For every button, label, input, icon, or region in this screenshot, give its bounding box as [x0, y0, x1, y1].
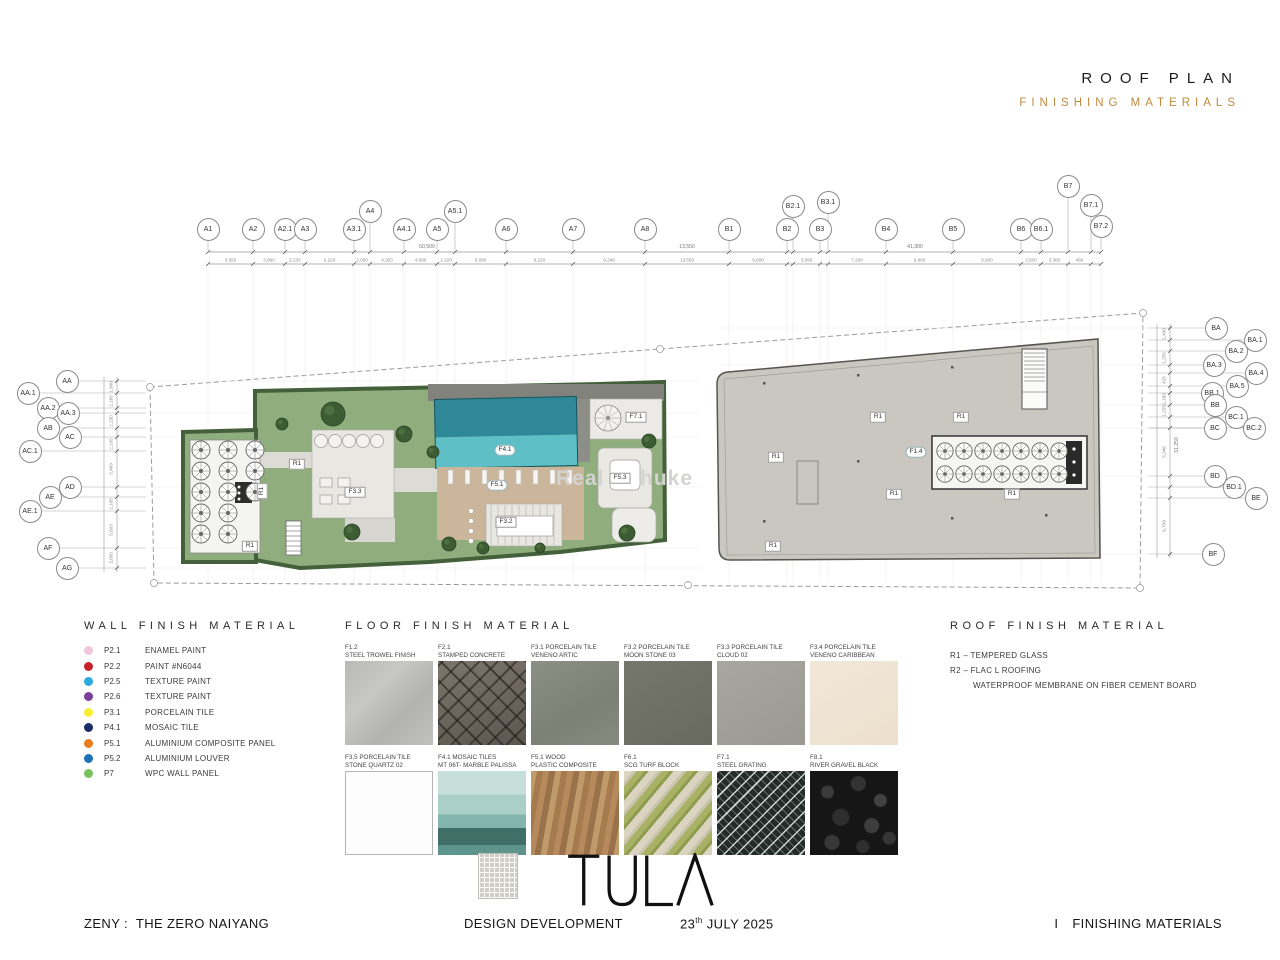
swimming-pool — [434, 396, 577, 468]
plan-tag-r1: R1 — [870, 412, 886, 423]
grid-bubble: B4 — [875, 218, 898, 241]
dimension-text: 6,800 — [752, 258, 764, 263]
floor-material-cell: F3.1 PORCELAIN TILEVENENO ARTIC — [531, 644, 619, 745]
grid-bubble: AF — [37, 537, 60, 560]
dimension-text: 4,090 — [415, 258, 427, 263]
grid-bubble: A5 — [426, 218, 449, 241]
material-code: P5.1 — [104, 739, 145, 748]
material-code: F3.3 PORCELAIN TILE — [717, 644, 805, 652]
stair-shaft — [1022, 349, 1047, 409]
wall-legend-row: P4.1MOSAIC TILE — [84, 720, 354, 735]
grid-bubble: A3.1 — [343, 218, 366, 241]
material-name: MOON STONE 03 — [624, 652, 712, 660]
dimension-text: 1,255 — [1161, 352, 1166, 364]
material-swatch — [531, 771, 619, 855]
dimension-text: 4,303 — [381, 258, 393, 263]
material-code: F2.1 — [438, 644, 526, 652]
plan-tag-f71: F7.1 — [625, 412, 646, 423]
dimension-text: 3,380 — [1049, 258, 1061, 263]
grid-bubble: A4 — [359, 200, 382, 223]
roof-legend-header: ROOF FINISH MATERIAL — [950, 620, 1250, 632]
material-name: STEEL GRATING — [717, 762, 805, 770]
dimension-text: 3,860 — [263, 258, 275, 263]
material-swatch — [717, 771, 805, 855]
floor-finish-legend: FLOOR FINISH MATERIAL F1.2STEEL TROWEL F… — [345, 620, 905, 855]
plan-tag-r1: R1 — [289, 459, 305, 470]
material-name: SCG TURF BLOCK — [624, 762, 712, 770]
grid-bubble: AB — [37, 417, 60, 440]
grid-bubble: BC — [1204, 417, 1227, 440]
grid-bubble: B2.1 — [782, 195, 805, 218]
grid-bubble: AC — [59, 426, 82, 449]
material-code: P2.1 — [104, 646, 145, 655]
wall-legend-row: P5.2ALUMINIUM LOUVER — [84, 751, 354, 766]
material-swatch — [438, 661, 526, 745]
material-code: P4.1 — [104, 723, 145, 732]
grid-bubble: A2 — [242, 218, 265, 241]
dimension-text: 13,550 — [679, 244, 695, 250]
grid-bubble: A5.1 — [444, 200, 467, 223]
dimension-text: 13,550 — [680, 258, 694, 263]
grid-bubble: B2 — [776, 218, 799, 241]
material-color-dot — [84, 754, 93, 763]
grid-bubble: AA — [56, 370, 79, 393]
plan-tag-f33: F3.3 — [344, 487, 365, 498]
dimension-text: 2,050 — [356, 258, 368, 263]
plan-tag-r1: R1 — [765, 541, 781, 552]
dimension-text: 5,346 — [1161, 446, 1166, 458]
wall-legend-row: P5.1ALUMINIUM COMPOSITE PANEL — [84, 735, 354, 750]
material-color-dot — [84, 662, 93, 671]
tula-logo — [565, 853, 717, 907]
material-name: MT 06T- MARBLE PALISSA — [438, 762, 526, 770]
material-code: F6.1 — [624, 754, 712, 762]
plan-tag-f53: F5.3 — [609, 473, 630, 484]
material-code: F8.1 — [810, 754, 898, 762]
plan-tag-r1: R1 — [242, 541, 258, 552]
dimension-text: 5,469 — [108, 463, 113, 475]
dimension-text: 460 — [1076, 258, 1084, 263]
material-code: F3.2 PORCELAIN TILE — [624, 644, 712, 652]
dimension-text: 2,230 — [108, 415, 113, 427]
material-code: F3.4 PORCELAIN TILE — [810, 644, 898, 652]
dimension-text: 6,220 — [324, 258, 336, 263]
grid-bubble: B3.1 — [817, 191, 840, 214]
grid-bubble: B3 — [809, 218, 832, 241]
grid-bubble: BD.1 — [1223, 476, 1246, 499]
roof-material-line: R1 – TEMPERED GLASS — [950, 648, 1250, 663]
material-color-dot — [84, 769, 93, 778]
grid-bubble: B7.2 — [1090, 215, 1113, 238]
grid-bubble: AE — [39, 486, 62, 509]
floor-material-cell: F4.1 MOSAIC TILESMT 06T- MARBLE PALISSA — [438, 754, 526, 855]
dimension-text: 5,603 — [108, 524, 113, 536]
dimension-text: 1,255 — [1161, 405, 1166, 417]
floor-material-cell: F3.3 PORCELAIN TILECLOUD 02 — [717, 644, 805, 745]
grid-bubble: AC.1 — [19, 440, 42, 463]
material-label: ALUMINIUM COMPOSITE PANEL — [145, 739, 275, 748]
plan-tag-r1: R1 — [1004, 489, 1020, 500]
material-swatch — [531, 661, 619, 745]
grid-bubble: BB — [1204, 394, 1227, 417]
grid-bubble: B5 — [942, 218, 965, 241]
material-label: ALUMINIUM LOUVER — [145, 754, 230, 763]
grid-bubble: AA.1 — [17, 382, 40, 405]
dimension-text: 31,250 — [1174, 437, 1180, 453]
date-label: 23th JULY 2025 — [680, 916, 773, 931]
material-label: MOSAIC TILE — [145, 723, 199, 732]
dimension-text: 6,090 — [475, 258, 487, 263]
dimension-text: 2,105 — [108, 438, 113, 450]
plan-tag-f32: F3.2 — [495, 517, 516, 528]
wall-legend-row: P2.1ENAMEL PAINT — [84, 643, 354, 658]
dimension-text: 2,230 — [289, 258, 301, 263]
grid-bubble: BC.2 — [1243, 417, 1266, 440]
grid-bubble: A6 — [495, 218, 518, 241]
phase-label: DESIGN DEVELOPMENT — [464, 916, 623, 931]
wall-legend-row: P2.5TEXTURE PAINT — [84, 674, 354, 689]
watermark-fragment: huke — [640, 467, 693, 491]
floor-material-cell: F5.1 WOODPLASTIC COMPOSITE — [531, 754, 619, 855]
dimension-text: 8,220 — [534, 258, 546, 263]
material-code: P2.5 — [104, 677, 145, 686]
wall-legend-header: WALL FINISH MATERIAL — [84, 620, 354, 632]
material-swatch — [810, 661, 898, 745]
dimension-text: 9,600 — [981, 258, 993, 263]
plan-tag-f41: F4.1 — [494, 445, 515, 456]
wall-legend-row: P3.1PORCELAIN TILE — [84, 705, 354, 720]
material-name: VENENO ARTIC — [531, 652, 619, 660]
plan-tag-f51: F5.1 — [486, 480, 507, 491]
dimension-text: 3,090 — [801, 258, 813, 263]
roof-finish-legend: ROOF FINISH MATERIAL R1 – TEMPERED GLASS… — [950, 620, 1250, 693]
wall-legend-row: P2.6TEXTURE PAINT — [84, 689, 354, 704]
roof-material-line: R2 – FLAC L ROOFING — [950, 663, 1250, 678]
material-label: PAINT #N6044 — [145, 662, 202, 671]
material-swatch — [810, 771, 898, 855]
material-swatch — [624, 771, 712, 855]
material-code: F3.5 PORCELAIN TILE — [345, 754, 433, 762]
grid-bubble: B7 — [1057, 175, 1080, 198]
material-code: P7 — [104, 769, 145, 778]
dimension-text: 1,900 — [108, 381, 113, 393]
dimension-text: 7,200 — [851, 258, 863, 263]
material-label: TEXTURE PAINT — [145, 677, 211, 686]
material-color-dot — [84, 739, 93, 748]
material-name: RIVER GRAVEL BLACK — [810, 762, 898, 770]
material-swatch — [345, 771, 433, 855]
grid-bubble: B6.1 — [1030, 218, 1053, 241]
material-label: WPC WALL PANEL — [145, 769, 219, 778]
grid-bubble: AD — [59, 476, 82, 499]
material-code: P2.2 — [104, 662, 145, 671]
grid-bubble: BA.3 — [1203, 354, 1226, 377]
dimension-text: 41,300 — [907, 244, 923, 250]
dimension-text: 50,500 — [419, 244, 435, 250]
plan-tag-r1: R1 — [886, 489, 902, 500]
dimension-text: 1,220 — [440, 258, 452, 263]
grid-bubble: AA.3 — [57, 402, 80, 425]
grid-bubble: A8 — [634, 218, 657, 241]
material-color-dot — [84, 677, 93, 686]
plan-tag-r1: R1 — [257, 483, 268, 499]
material-name: PLASTIC COMPOSITE — [531, 762, 619, 770]
dimension-text: 1,430 — [1161, 328, 1166, 340]
floor-material-cell: F8.1RIVER GRAVEL BLACK — [810, 754, 898, 855]
material-code: F5.1 WOOD — [531, 754, 619, 762]
material-name: STAMPED CONCRETE — [438, 652, 526, 660]
roof-plan-drawing — [0, 0, 1280, 615]
plan-tag-f14: F1.4 — [905, 447, 926, 458]
floor-material-cell: F2.1STAMPED CONCRETE — [438, 644, 526, 745]
dimension-text: 9,346 — [603, 258, 615, 263]
grid-bubble: B1 — [718, 218, 741, 241]
grid-bubble: AE.1 — [19, 500, 42, 523]
material-label: ENAMEL PAINT — [145, 646, 206, 655]
plan-tag-r1: R1 — [768, 452, 784, 463]
material-code: F3.1 PORCELAIN TILE — [531, 644, 619, 652]
service-stair — [286, 521, 301, 555]
sheet-label: IFINISHING MATERIALS — [1054, 916, 1222, 931]
floor-material-cell: F3.5 PORCELAIN TILESTONE QUARTZ 02 — [345, 754, 433, 855]
grid-bubble: A4.1 — [393, 218, 416, 241]
material-label: TEXTURE PAINT — [145, 692, 211, 701]
material-name: VENENO CARIBBEAN — [810, 652, 898, 660]
dimension-text: 425 — [1161, 376, 1166, 384]
dimension-text: 3,550 — [225, 258, 237, 263]
material-code: F1.2 — [345, 644, 433, 652]
roof-material-note: WATERPROOF MEMBRANE ON FIBER CEMENT BOAR… — [973, 678, 1250, 693]
grid-bubble: BA.2 — [1225, 340, 1248, 363]
material-code: P3.1 — [104, 708, 145, 717]
floor-material-cell: F7.1STEEL GRATING — [717, 754, 805, 855]
wall-legend-row: P7WPC WALL PANEL — [84, 766, 354, 781]
grid-bubble: AG — [56, 557, 79, 580]
floor-material-cell: F1.2STEEL TROWEL FINISH — [345, 644, 433, 745]
material-name: CLOUD 02 — [717, 652, 805, 660]
grid-bubble: BA.5 — [1226, 375, 1249, 398]
material-swatch — [624, 661, 712, 745]
material-color-dot — [84, 646, 93, 655]
dimension-text: 2,105 — [108, 498, 113, 510]
grid-bubble: A7 — [562, 218, 585, 241]
grid-bubble: A1 — [197, 218, 220, 241]
material-sub-swatch — [478, 853, 518, 899]
material-label: PORCELAIN TILE — [145, 708, 214, 717]
wall-legend-row: P2.2PAINT #N6044 — [84, 658, 354, 673]
material-code: P5.2 — [104, 754, 145, 763]
material-name: STONE QUARTZ 02 — [345, 762, 433, 770]
material-swatch — [717, 661, 805, 745]
plan-tag-r1: R1 — [953, 412, 969, 423]
dimension-text: 3,050 — [108, 552, 113, 564]
material-code: F4.1 MOSAIC TILES — [438, 754, 526, 762]
grid-bubble: A3 — [294, 218, 317, 241]
floor-material-cell: F3.2 PORCELAIN TILEMOON STONE 03 — [624, 644, 712, 745]
dimension-text: 2,165 — [108, 395, 113, 407]
watermark-fragment: Real — [556, 467, 604, 491]
material-code: F7.1 — [717, 754, 805, 762]
dimension-text: 6,800 — [914, 258, 926, 263]
material-code: P2.6 — [104, 692, 145, 701]
material-swatch — [345, 661, 433, 745]
grid-bubble: BF — [1202, 543, 1225, 566]
material-color-dot — [84, 723, 93, 732]
floor-material-cell: F6.1SCG TURF BLOCK — [624, 754, 712, 855]
dimension-text: 1,180 — [1161, 393, 1166, 405]
material-color-dot — [84, 692, 93, 701]
spiral-stair — [595, 405, 621, 431]
dimension-text: 6,709 — [1161, 520, 1166, 532]
grid-bubble: B7.1 — [1080, 194, 1103, 217]
dimension-text: 2,500 — [1025, 258, 1037, 263]
material-name: STEEL TROWEL FINISH — [345, 652, 433, 660]
wall-finish-legend: WALL FINISH MATERIAL P2.1ENAMEL PAINTP2.… — [84, 620, 354, 782]
floor-legend-header: FLOOR FINISH MATERIAL — [345, 620, 905, 632]
grid-bubble: BA — [1205, 317, 1228, 340]
grid-bubble: BE — [1245, 487, 1268, 510]
material-swatch — [438, 771, 526, 855]
project-name: ZENY : THE ZERO NAIYANG — [84, 916, 269, 931]
floor-material-cell: F3.4 PORCELAIN TILEVENENO CARIBBEAN — [810, 644, 898, 745]
material-color-dot — [84, 708, 93, 717]
